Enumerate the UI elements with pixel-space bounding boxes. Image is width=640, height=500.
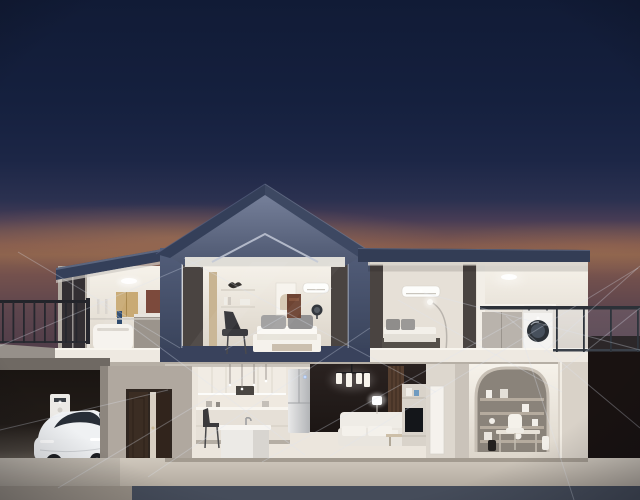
smart-home-cutaway-image: [0, 0, 640, 500]
scene-canvas: [0, 0, 640, 500]
vignette-overlay: [0, 0, 640, 500]
